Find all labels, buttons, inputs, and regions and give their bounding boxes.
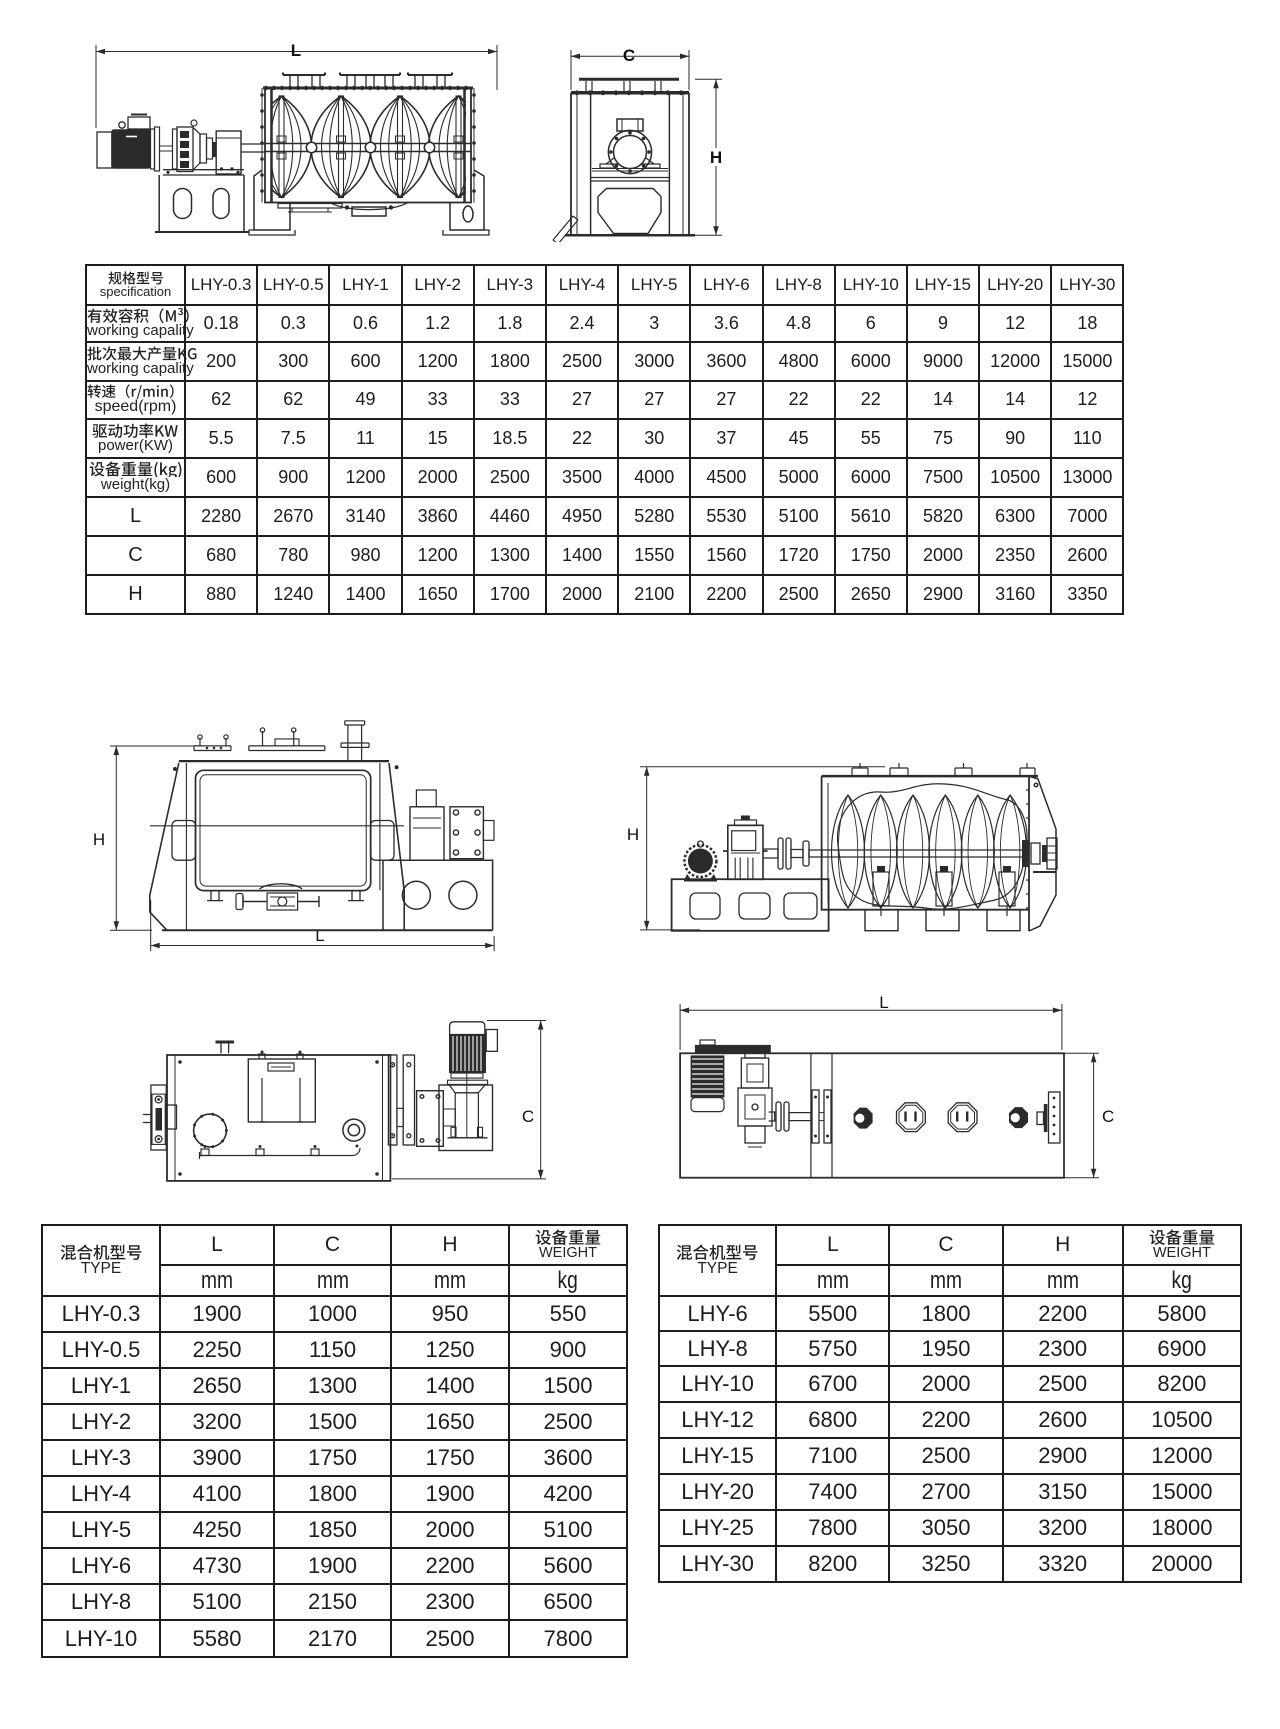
svg-text:C: C xyxy=(623,46,635,65)
svg-text:H: H xyxy=(93,830,105,849)
svg-text:L: L xyxy=(291,41,301,60)
svg-text:C: C xyxy=(522,1107,534,1126)
svg-text:H: H xyxy=(710,148,722,167)
svg-text:H: H xyxy=(627,825,639,844)
svg-text:C: C xyxy=(1102,1107,1114,1126)
svg-text:L: L xyxy=(315,926,324,945)
svg-text:L: L xyxy=(879,995,888,1012)
